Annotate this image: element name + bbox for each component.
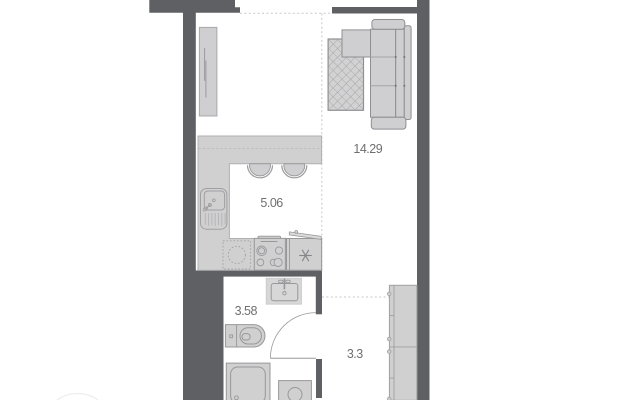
svg-text:3.58: 3.58	[235, 304, 258, 318]
svg-text:14.29: 14.29	[353, 142, 382, 156]
svg-text:5.06: 5.06	[260, 196, 283, 210]
svg-text:3.3: 3.3	[347, 347, 363, 361]
